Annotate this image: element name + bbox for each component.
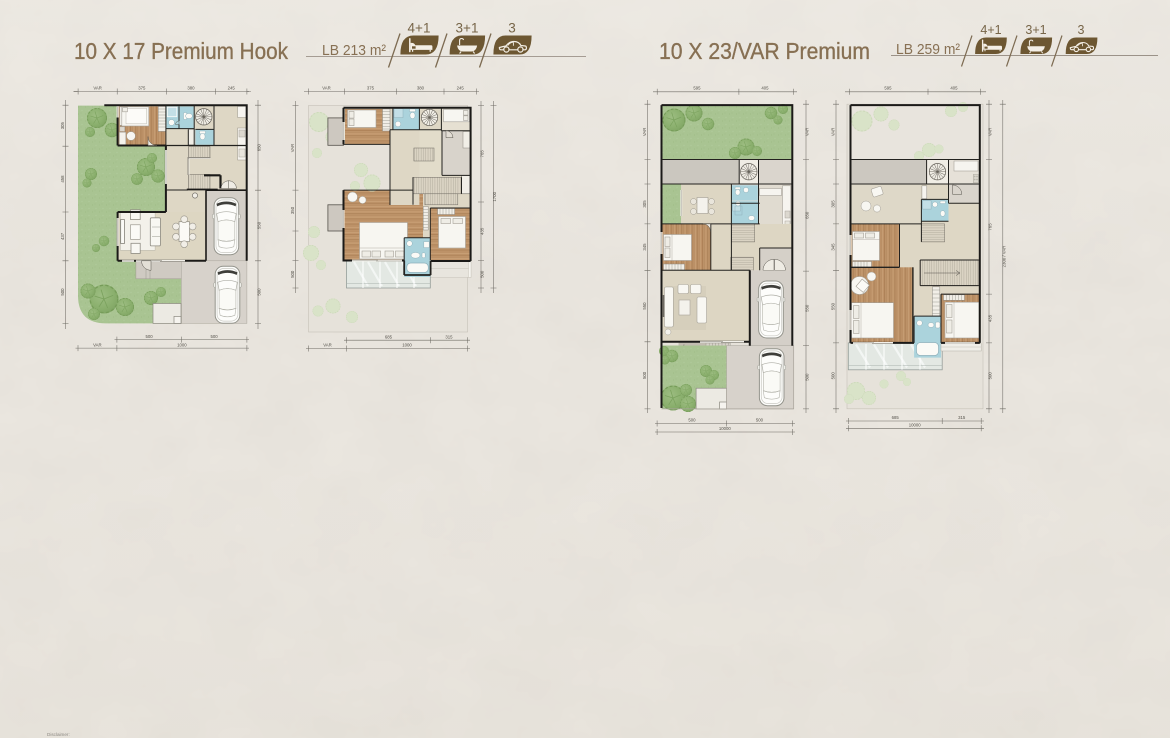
svg-text:375: 375	[367, 85, 375, 90]
svg-text:315: 315	[958, 415, 966, 420]
svg-text:10000: 10000	[909, 423, 922, 428]
svg-text:437: 437	[60, 232, 65, 240]
svg-text:380: 380	[187, 85, 195, 90]
svg-text:345: 345	[830, 243, 835, 251]
svg-text:500: 500	[642, 371, 647, 379]
svg-text:500: 500	[257, 288, 262, 296]
svg-text:3+1: 3+1	[456, 21, 479, 36]
svg-text:435: 435	[480, 227, 485, 235]
svg-text:500: 500	[211, 334, 219, 339]
svg-text:3: 3	[1078, 23, 1085, 37]
svg-text:305: 305	[642, 200, 647, 208]
svg-text:3+1: 3+1	[1025, 23, 1046, 37]
svg-text:245: 245	[228, 85, 236, 90]
svg-text:595: 595	[884, 86, 892, 91]
svg-text:685: 685	[385, 334, 393, 339]
svg-text:10 X 17 Premium Hook: 10 X 17 Premium Hook	[74, 38, 288, 64]
svg-text:350: 350	[290, 206, 295, 214]
svg-text:305: 305	[830, 200, 835, 208]
svg-text:VAR: VAR	[322, 85, 331, 90]
svg-text:500: 500	[688, 418, 696, 423]
svg-text:VAR: VAR	[290, 144, 295, 153]
svg-text:405: 405	[761, 86, 769, 91]
svg-text:305: 305	[60, 122, 65, 130]
svg-text:550: 550	[830, 302, 835, 310]
svg-text:500: 500	[988, 372, 993, 380]
svg-text:650: 650	[257, 144, 262, 152]
svg-text:685: 685	[892, 415, 900, 420]
svg-text:10 X 23/VAR Premium: 10 X 23/VAR Premium	[659, 38, 870, 64]
svg-text:650: 650	[805, 211, 810, 219]
svg-text:VAR: VAR	[323, 343, 332, 348]
svg-text:500: 500	[480, 270, 485, 278]
svg-text:500: 500	[60, 288, 65, 296]
svg-text:Disclaimer:: Disclaimer:	[47, 732, 70, 737]
svg-text:500: 500	[805, 373, 810, 381]
svg-text:2300 / VAR: 2300 / VAR	[1001, 246, 1006, 268]
svg-text:550: 550	[805, 304, 810, 312]
svg-text:VAR: VAR	[642, 128, 647, 137]
svg-text:10000: 10000	[719, 426, 732, 431]
svg-text:435: 435	[988, 314, 993, 322]
svg-text:765: 765	[988, 223, 993, 231]
svg-text:375: 375	[138, 85, 146, 90]
svg-text:380: 380	[417, 85, 425, 90]
svg-text:595: 595	[693, 86, 701, 91]
svg-text:4+1: 4+1	[408, 21, 431, 36]
svg-text:315: 315	[445, 334, 453, 339]
svg-text:VAR: VAR	[93, 85, 102, 90]
svg-text:765: 765	[480, 150, 485, 158]
svg-text:1000: 1000	[177, 342, 187, 347]
svg-text:500: 500	[830, 372, 835, 380]
svg-text:500: 500	[756, 418, 764, 423]
svg-text:458: 458	[60, 175, 65, 183]
svg-text:405: 405	[950, 86, 958, 91]
svg-text:500: 500	[290, 270, 295, 278]
svg-text:1700: 1700	[492, 191, 497, 201]
svg-text:3: 3	[508, 21, 516, 36]
svg-text:500: 500	[146, 334, 154, 339]
svg-text:345: 345	[642, 243, 647, 251]
svg-text:VAR: VAR	[805, 128, 810, 137]
svg-text:4+1: 4+1	[980, 23, 1001, 37]
svg-text:550: 550	[257, 221, 262, 229]
svg-text:1000: 1000	[402, 343, 412, 348]
svg-text:VAR: VAR	[988, 128, 993, 137]
svg-text:550: 550	[642, 302, 647, 310]
svg-text:VAR: VAR	[830, 128, 835, 137]
svg-text:VAR: VAR	[93, 342, 102, 347]
svg-text:245: 245	[457, 85, 465, 90]
